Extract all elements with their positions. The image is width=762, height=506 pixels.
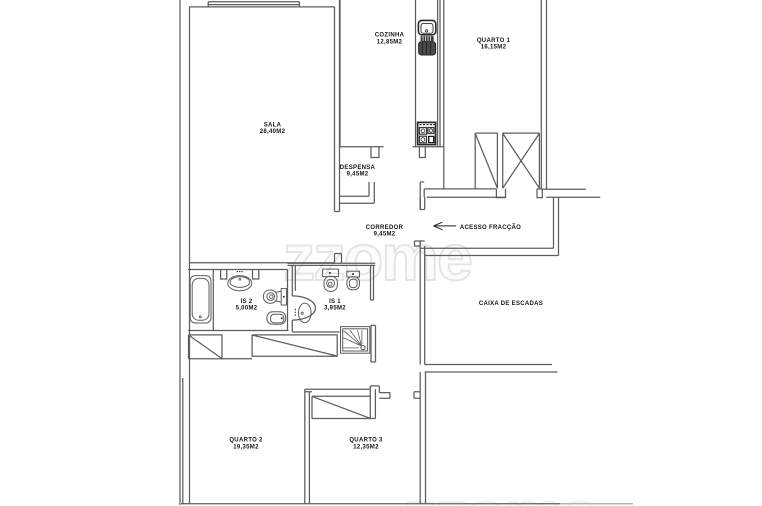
svg-text:12,35M2: 12,35M2 [353,444,379,450]
svg-text:12,85M2: 12,85M2 [377,39,403,45]
svg-text:CORREDOR: CORREDOR [366,225,404,231]
svg-text:IS 2: IS 2 [241,299,253,305]
svg-text:9,45M2: 9,45M2 [347,171,369,177]
svg-text:SALA: SALA [264,122,282,128]
svg-text:CAIXA DE ESCADAS: CAIXA DE ESCADAS [479,301,543,307]
svg-text:DESPENSA: DESPENSA [340,165,376,171]
svg-text:28,40M2: 28,40M2 [260,129,286,135]
svg-text:16,15M2: 16,15M2 [481,45,507,51]
svg-text:19,35M2: 19,35M2 [233,444,259,450]
svg-text:zzome: zzome [404,477,597,506]
svg-text:QUARTO 3: QUARTO 3 [349,437,383,443]
svg-text:9,45M2: 9,45M2 [374,232,396,238]
svg-text:5,00M2: 5,00M2 [236,305,258,311]
svg-text:ACESSO FRACÇÃO: ACESSO FRACÇÃO [460,224,521,231]
svg-text:QUARTO 2: QUARTO 2 [229,437,263,443]
svg-text:COZINHA: COZINHA [375,33,405,39]
svg-text:IS 1: IS 1 [329,299,341,305]
svg-text:3,95M2: 3,95M2 [324,305,346,311]
svg-text:QUARTO 1: QUARTO 1 [477,38,511,44]
